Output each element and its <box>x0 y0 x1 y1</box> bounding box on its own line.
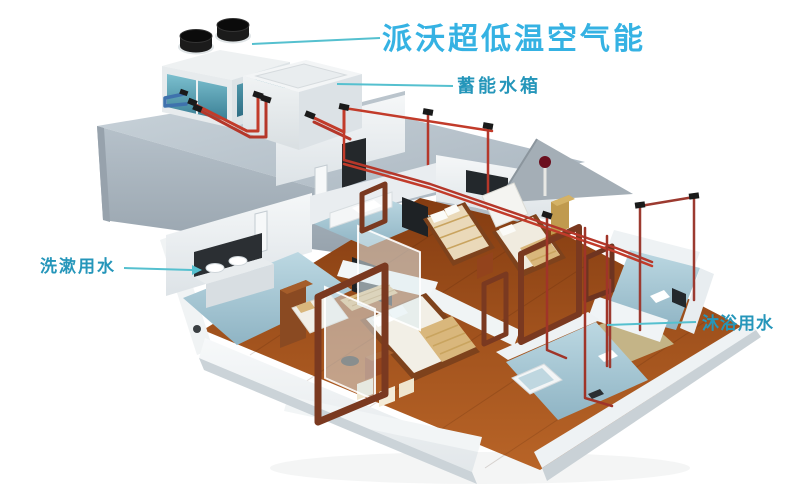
fan-icon <box>180 30 212 43</box>
waste-bin <box>193 325 201 333</box>
system-title-label: 派沃超低温空气能 <box>382 25 646 55</box>
illustration-stage: 派沃超低温空气能 蓄能水箱 洗漱用水 沐浴用水 <box>0 0 800 498</box>
house-cutaway-illustration <box>0 0 800 498</box>
washing-water-label: 洗漱用水 <box>40 258 116 275</box>
sink <box>229 257 247 266</box>
bathing-water-label: 沐浴用水 <box>702 315 774 332</box>
leader-line-title <box>252 38 380 44</box>
storage-tank-label: 蓄能水箱 <box>457 77 541 95</box>
fan-icon <box>217 19 249 32</box>
sink <box>206 264 224 273</box>
ground-shadow <box>270 452 690 484</box>
lamp-icon <box>539 156 551 168</box>
